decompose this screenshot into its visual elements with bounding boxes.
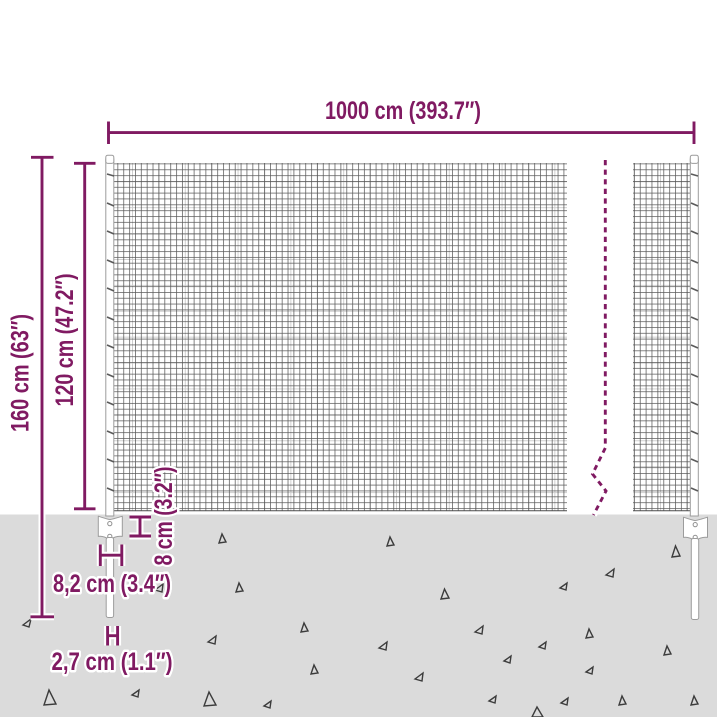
svg-text:2,7 cm (1.1″): 2,7 cm (1.1″) xyxy=(52,648,173,676)
svg-text:120 cm (47.2″): 120 cm (47.2″) xyxy=(51,274,79,407)
svg-text:8 cm (3.2″): 8 cm (3.2″) xyxy=(150,467,178,566)
svg-text:1000 cm (393.7″): 1000 cm (393.7″) xyxy=(325,97,481,125)
svg-text:160 cm (63″): 160 cm (63″) xyxy=(7,314,35,432)
svg-text:8,2 cm (3.4″): 8,2 cm (3.4″) xyxy=(53,570,171,598)
